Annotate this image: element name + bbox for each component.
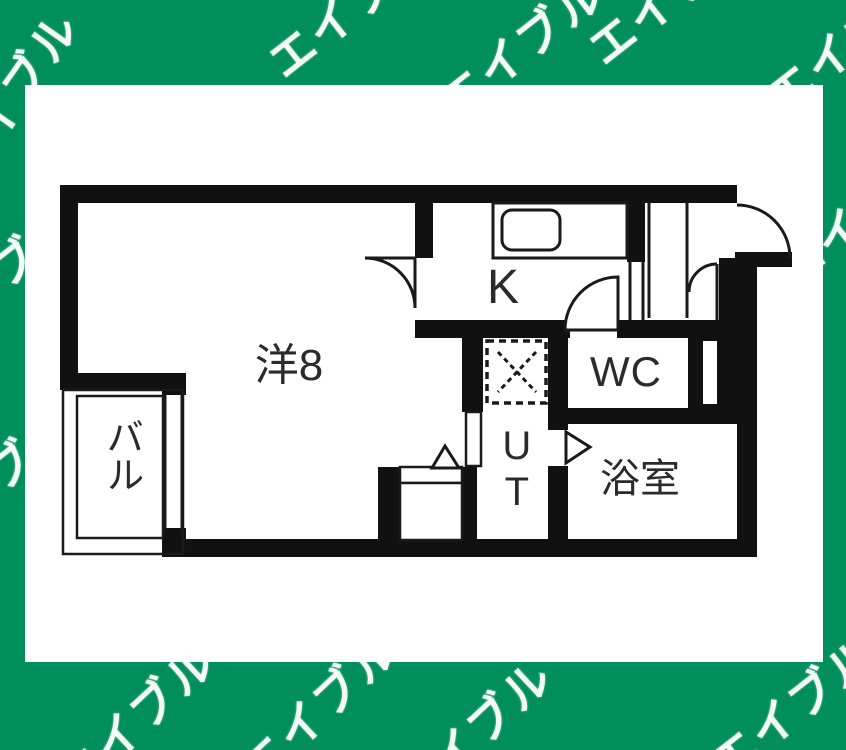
closet-door-arc — [689, 264, 717, 320]
door-arc-western — [365, 258, 415, 308]
kitchen-counter — [493, 203, 627, 258]
wall-room-kitchen — [415, 185, 433, 258]
wall-ut-left — [462, 320, 483, 412]
door-triangle-right-icon — [566, 432, 590, 463]
pipe-space — [703, 341, 717, 404]
room-label-kitchen: K — [487, 263, 519, 313]
wall-right — [737, 258, 757, 557]
room-label-utility: UT — [495, 424, 537, 516]
washer-pan-icon — [487, 341, 546, 403]
wall-kitchen-hall — [627, 185, 645, 262]
wall-bottom — [164, 539, 757, 557]
wall-wc-bath — [548, 408, 737, 424]
room-label-western: 洋8 — [255, 343, 323, 389]
wall-left — [60, 185, 78, 390]
room-label-bathroom: 浴室 — [600, 459, 680, 501]
ut-sliding-door — [466, 412, 481, 466]
room-label-toilet: WC — [590, 350, 662, 394]
wall-mid-right — [617, 320, 757, 338]
alcove — [400, 467, 462, 540]
wall-alcove-right — [462, 467, 477, 545]
floorplan-drawing — [0, 0, 846, 750]
entrance-door-arc — [737, 205, 790, 258]
kitchen-doorway — [630, 262, 643, 320]
entrance-door-panel — [735, 252, 792, 267]
door-triangle-up-icon — [432, 446, 459, 468]
alcove-floor — [400, 483, 462, 540]
room-label-balcony: バル — [100, 417, 140, 493]
entrance-hall-lines — [649, 203, 687, 318]
wall-mid-left — [415, 320, 570, 338]
wall-ut-bath-lower — [548, 466, 568, 540]
branded-floorplan-image: エイブル エイブル エイブル エイブル エイブル エイブル エイブル エイブル … — [0, 0, 846, 750]
sink-icon — [502, 210, 560, 250]
balcony-window — [165, 393, 182, 530]
wall-alcove-left — [378, 467, 400, 545]
entrance-door — [735, 205, 792, 267]
door-arc-wc — [565, 277, 618, 330]
